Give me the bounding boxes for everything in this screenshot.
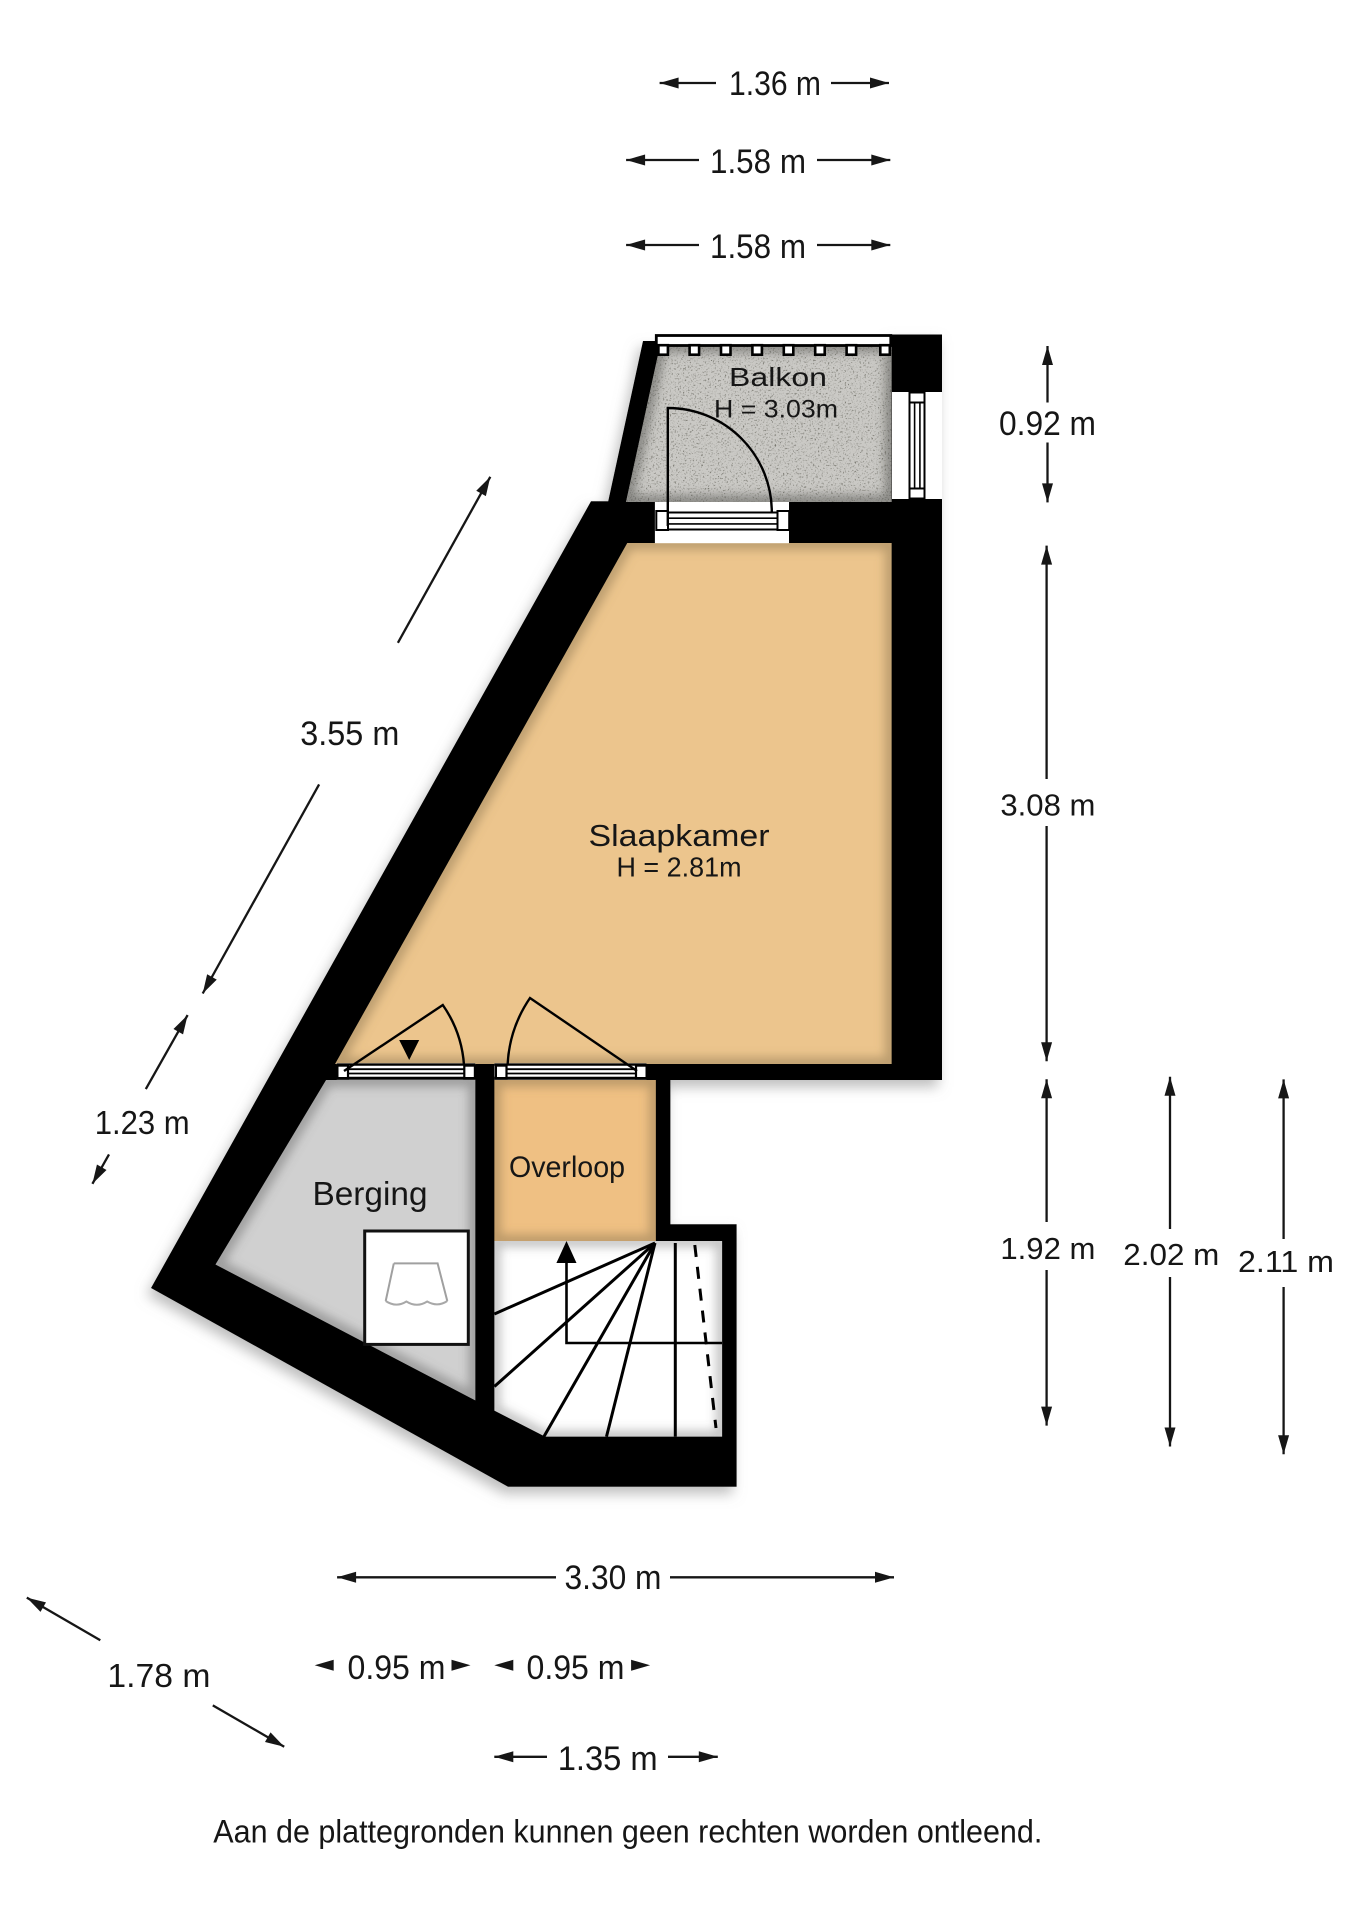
svg-text:1.92 m: 1.92 m <box>1000 1231 1095 1266</box>
svg-text:1.78 m: 1.78 m <box>107 1657 210 1694</box>
svg-text:Slaapkamer: Slaapkamer <box>589 818 770 853</box>
svg-text:H = 2.81m: H = 2.81m <box>617 852 742 883</box>
svg-text:2.02 m: 2.02 m <box>1123 1237 1219 1272</box>
svg-text:1.23 m: 1.23 m <box>95 1104 190 1141</box>
svg-text:0.92 m: 0.92 m <box>999 405 1096 443</box>
svg-text:H = 3.03m: H = 3.03m <box>714 396 838 424</box>
svg-text:Overloop: Overloop <box>509 1151 625 1184</box>
svg-text:0.95 m: 0.95 m <box>527 1649 625 1687</box>
svg-text:Berging: Berging <box>313 1175 428 1212</box>
svg-text:1.58 m: 1.58 m <box>710 143 806 181</box>
svg-text:0.95 m: 0.95 m <box>348 1649 446 1687</box>
svg-text:1.36 m: 1.36 m <box>729 65 821 103</box>
svg-text:Balkon: Balkon <box>729 362 827 392</box>
svg-text:1.35 m: 1.35 m <box>558 1740 658 1778</box>
svg-text:2.11 m: 2.11 m <box>1238 1244 1334 1279</box>
svg-text:3.30 m: 3.30 m <box>565 1559 662 1597</box>
svg-text:3.08 m: 3.08 m <box>1000 787 1095 822</box>
svg-text:1.58 m: 1.58 m <box>710 228 806 266</box>
svg-text:Aan de plattegronden kunnen ge: Aan de plattegronden kunnen geen rechten… <box>213 1814 1042 1850</box>
svg-text:3.55 m: 3.55 m <box>300 715 399 753</box>
